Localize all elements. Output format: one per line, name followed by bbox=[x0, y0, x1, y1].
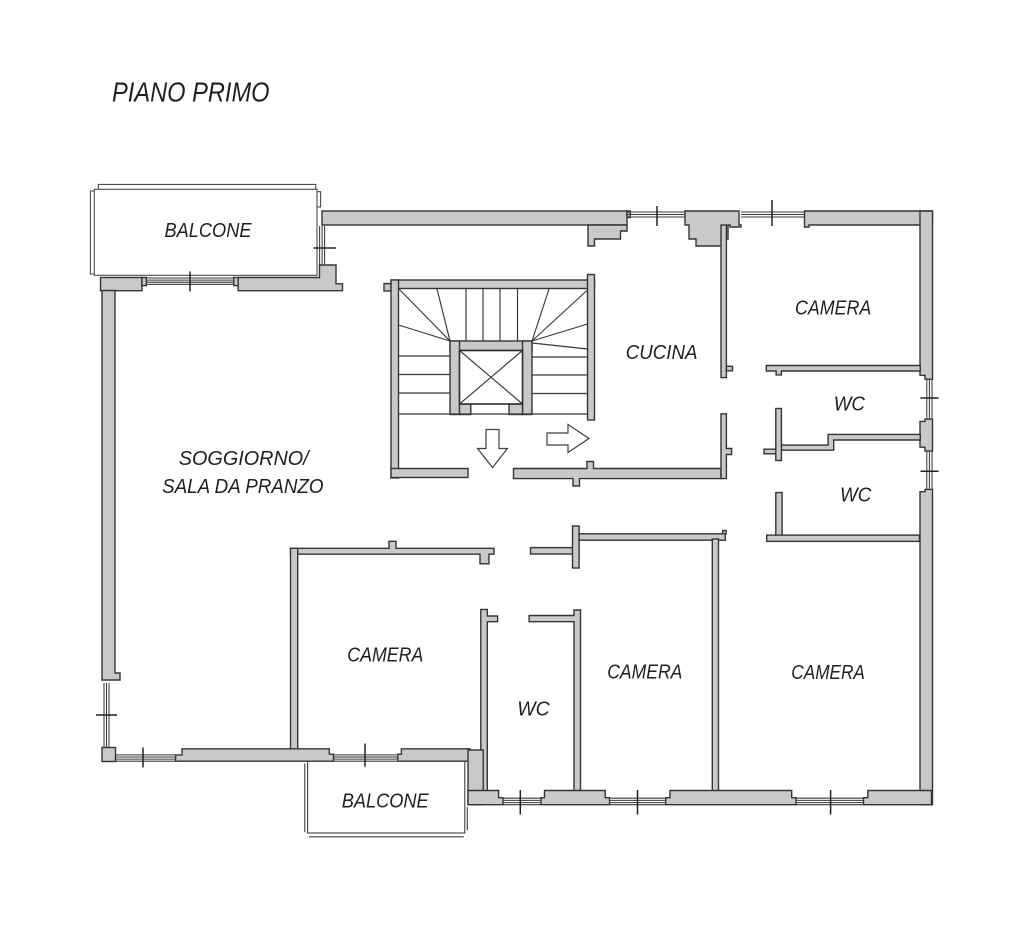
svg-text:SALA DA PRANZO: SALA DA PRANZO bbox=[162, 475, 323, 498]
svg-text:CAMERA: CAMERA bbox=[347, 643, 423, 666]
svg-text:WC: WC bbox=[834, 392, 865, 415]
svg-text:CAMERA: CAMERA bbox=[791, 661, 865, 684]
svg-text:WC: WC bbox=[517, 697, 550, 720]
svg-text:CUCINA: CUCINA bbox=[626, 341, 698, 364]
svg-text:CAMERA: CAMERA bbox=[607, 661, 682, 684]
svg-text:CAMERA: CAMERA bbox=[795, 297, 871, 320]
svg-text:BALCONE: BALCONE bbox=[342, 790, 429, 813]
svg-text:WC: WC bbox=[840, 483, 871, 506]
svg-text:PIANO PRIMO: PIANO PRIMO bbox=[112, 77, 270, 108]
svg-text:SOGGIORNO/: SOGGIORNO/ bbox=[179, 447, 311, 470]
svg-text:BALCONE: BALCONE bbox=[165, 219, 252, 242]
